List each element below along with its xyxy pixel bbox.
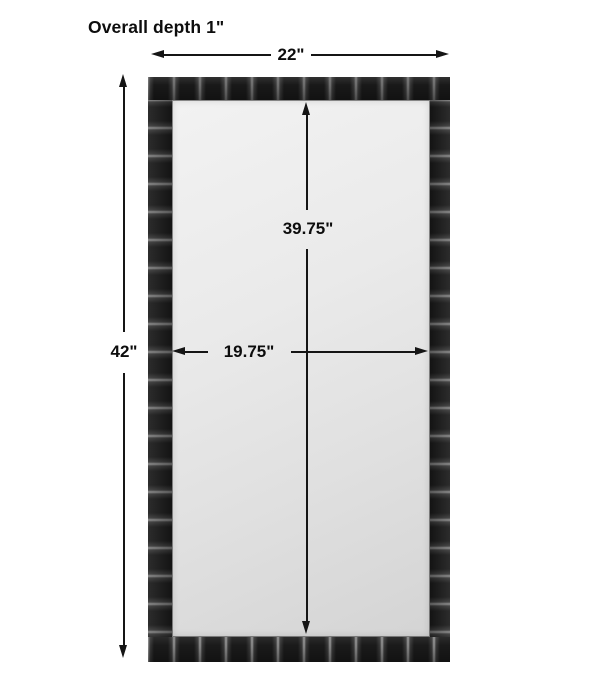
dimension-line-segment xyxy=(291,351,415,353)
dimension-line-segment xyxy=(311,54,437,56)
arrow-down-icon xyxy=(302,621,310,634)
arrow-right-icon xyxy=(415,347,428,355)
frame-dentil-top-edge xyxy=(148,77,450,100)
dimension-line-segment xyxy=(184,351,208,353)
mirror-width-value: 19.75" xyxy=(224,342,275,362)
frame-dentil-right-edge xyxy=(430,100,450,637)
overall-height-dimension: 42" xyxy=(116,74,132,658)
arrow-down-icon xyxy=(119,645,127,658)
arrow-right-icon xyxy=(436,50,449,58)
dimension-line-segment xyxy=(306,114,308,210)
overall-height-value: 42" xyxy=(111,342,138,362)
overall-depth-label: Overall depth 1" xyxy=(88,17,224,38)
dimension-line-segment xyxy=(123,86,125,332)
dimension-line-segment xyxy=(163,54,271,56)
mirror-width-dimension: 19.75" xyxy=(172,344,428,360)
overall-width-value: 22" xyxy=(278,45,305,65)
mirror-height-value: 39.75" xyxy=(283,219,334,239)
mirror-height-dimension: 39.75" xyxy=(299,102,315,634)
product-dimension-diagram: Overall depth 1" 22" 42" 39.75" 19.75" xyxy=(0,0,602,700)
dimension-line-segment xyxy=(123,373,125,646)
overall-width-dimension: 22" xyxy=(151,47,449,63)
dimension-line-segment xyxy=(306,249,308,623)
frame-dentil-left-edge xyxy=(148,100,172,637)
frame-dentil-bottom-edge xyxy=(148,637,450,662)
